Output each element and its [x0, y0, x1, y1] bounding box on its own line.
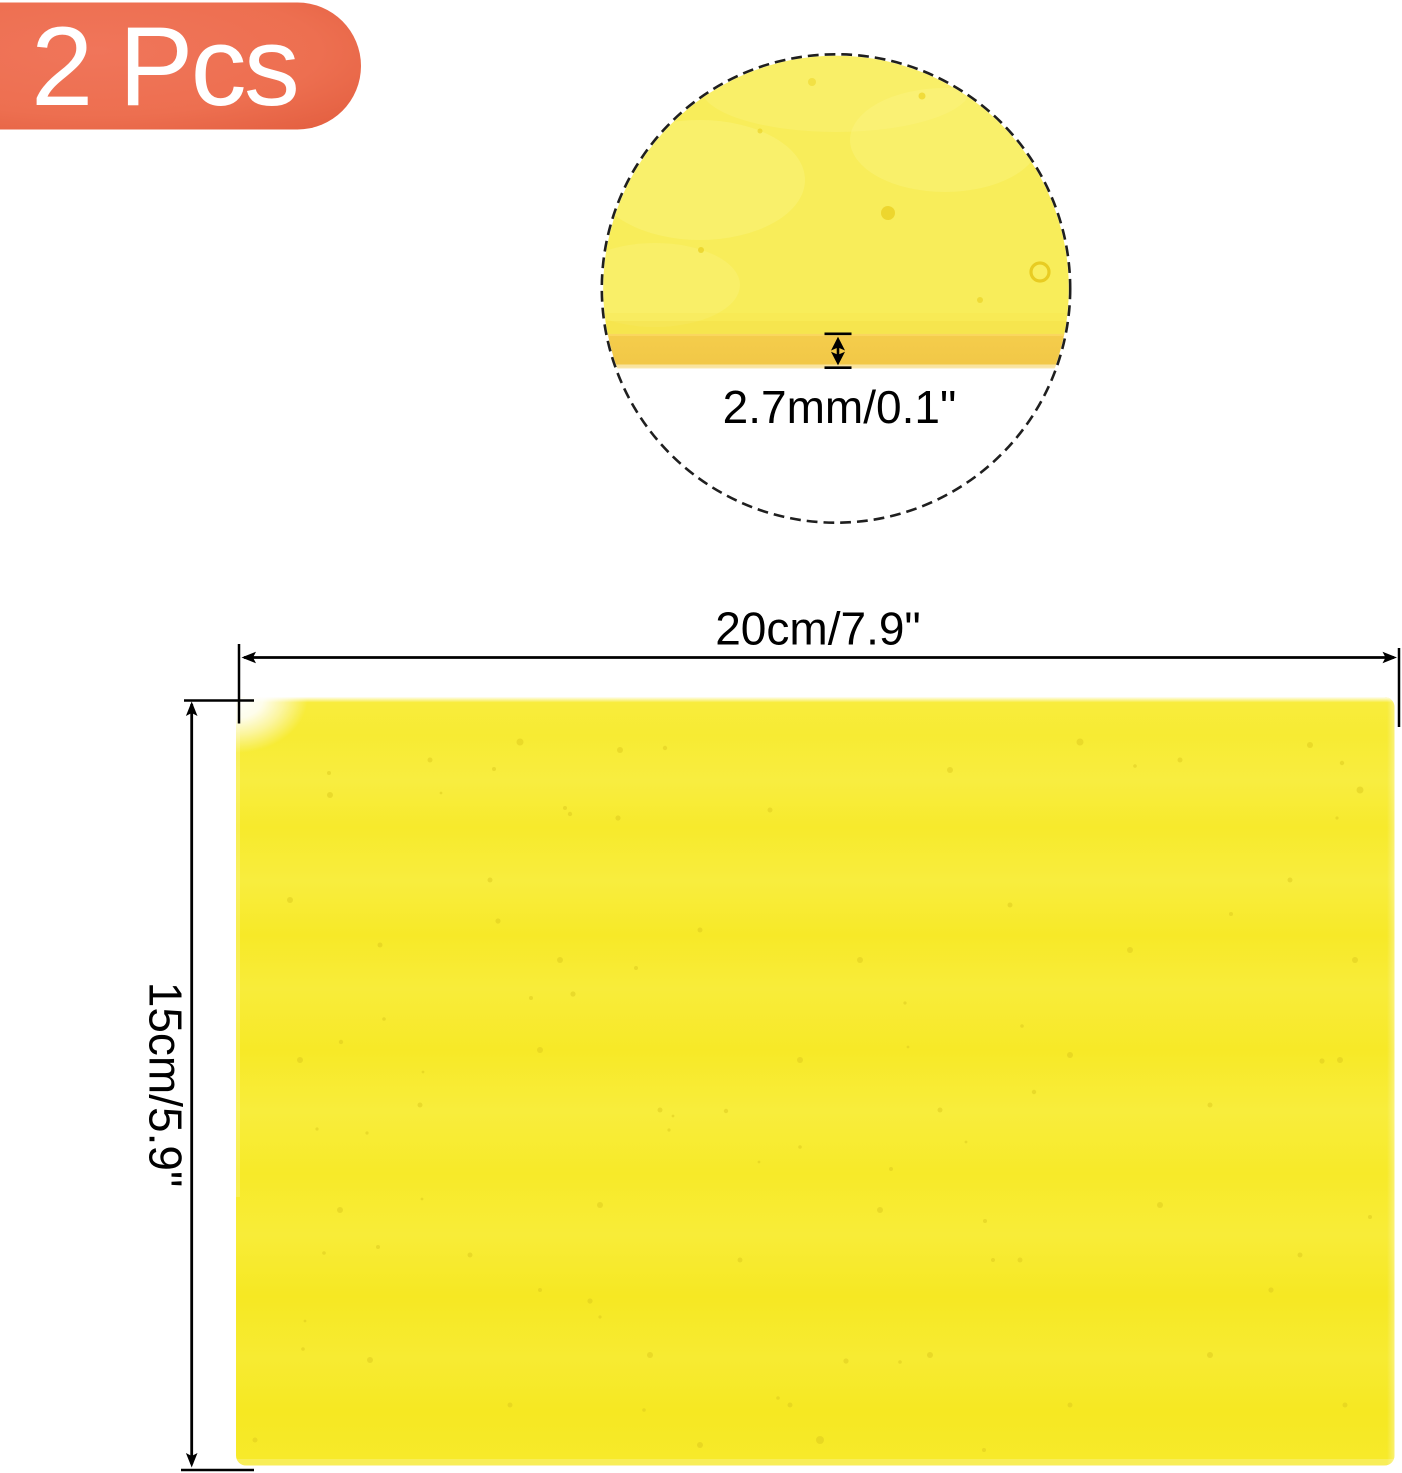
svg-text:15cm/5.9": 15cm/5.9" [140, 982, 192, 1188]
svg-text:2.7mm/0.1": 2.7mm/0.1" [723, 381, 957, 433]
svg-text:20cm/7.9": 20cm/7.9" [715, 603, 921, 655]
svg-text:2 Pcs: 2 Pcs [31, 4, 297, 129]
